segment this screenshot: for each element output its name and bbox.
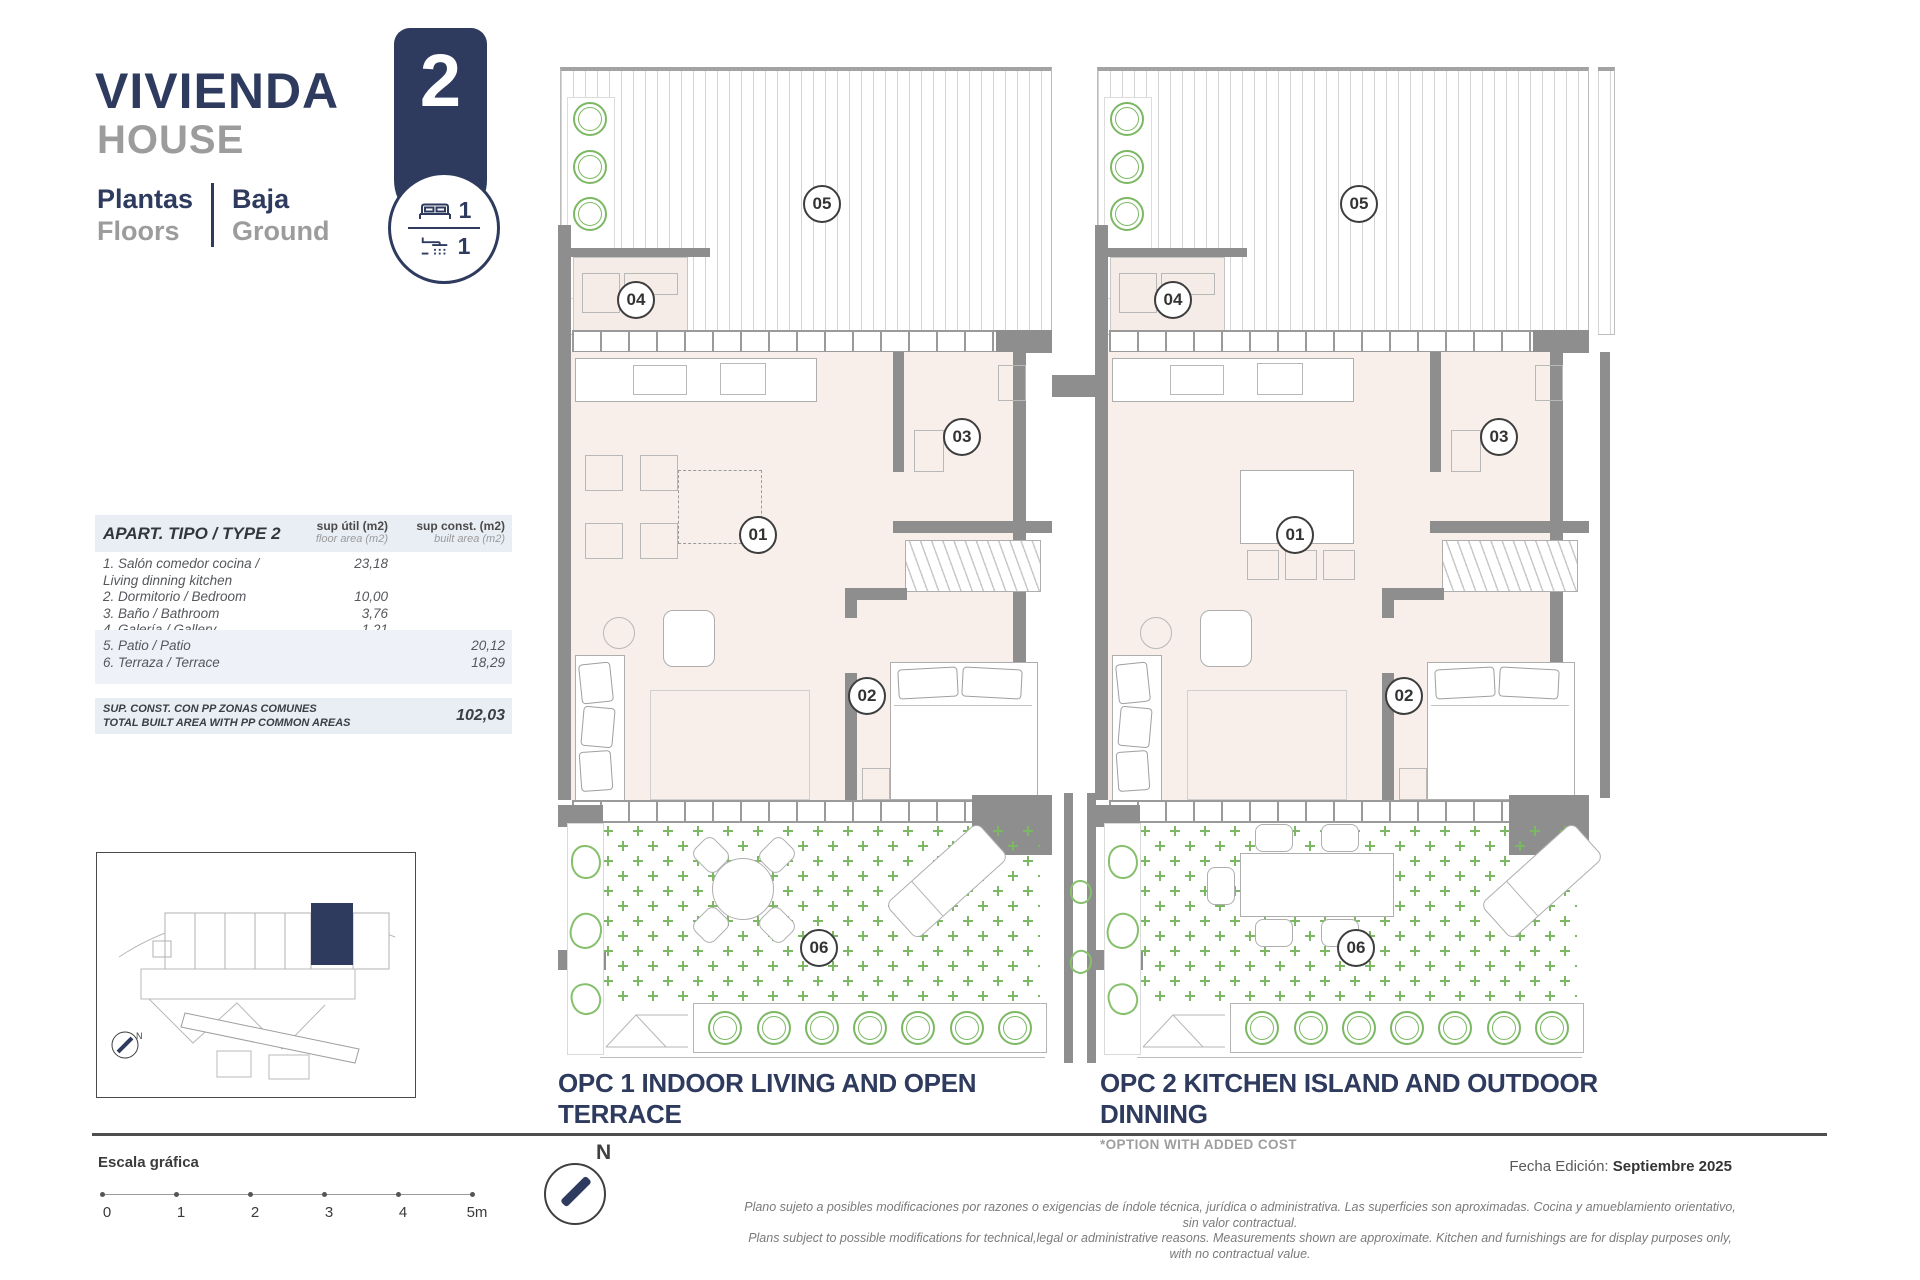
- window-band: [572, 330, 996, 353]
- location-keymap: N: [96, 852, 416, 1098]
- floor-value-es: Baja: [232, 183, 329, 215]
- plant-icon: [1110, 197, 1144, 231]
- planter-row: [693, 1003, 1047, 1053]
- pillow: [1434, 666, 1495, 699]
- wall: [1430, 521, 1589, 533]
- toilet: [1535, 365, 1563, 401]
- window-band: [1109, 800, 1509, 823]
- stool: [1323, 550, 1355, 580]
- room-label-bath: 03: [1480, 418, 1518, 456]
- plant-icon: [1110, 150, 1144, 184]
- armchair: [1200, 610, 1252, 667]
- table-row: 6. Terraza / Terrace 18,29: [95, 655, 512, 672]
- total-label-es: SUP. CONST. CON PP ZONAS COMUNES: [103, 702, 385, 716]
- edition-date-value: Septiembre 2025: [1613, 1158, 1732, 1175]
- caption-opc2-note: *OPTION WITH ADDED COST: [1100, 1137, 1680, 1152]
- chair: [640, 455, 678, 491]
- outdoor-dining-table: [1240, 853, 1394, 917]
- rug: [1187, 690, 1347, 800]
- page-title-en: HOUSE: [97, 120, 244, 160]
- floorplan-opc1: 05 04 03 01: [558, 45, 1064, 1067]
- wall: [996, 330, 1052, 353]
- chair: [1255, 919, 1293, 947]
- cushion: [578, 661, 614, 704]
- total-label-en: TOTAL BUILT AREA WITH PP COMMON AREAS: [103, 716, 385, 730]
- col-floor-area: sup útil (m2) floor area (m2): [316, 519, 388, 545]
- plant-icon: [998, 1011, 1032, 1045]
- plan-sheet: VIVIENDA HOUSE Plantas Floors Baja Groun…: [0, 0, 1920, 1280]
- table-title: APART. TIPO / TYPE 2: [103, 524, 281, 544]
- cushion: [580, 706, 615, 749]
- table-total-band: SUP. CONST. CON PP ZONAS COMUNES TOTAL B…: [95, 698, 512, 734]
- total-value: 102,03: [385, 707, 505, 725]
- wall: [1095, 248, 1247, 257]
- neighbor-patio-fragment: [1598, 67, 1615, 335]
- plant-icon: [571, 845, 601, 879]
- table-rows-1-4: 1. Salón comedor cocina / Living dinning…: [95, 556, 512, 639]
- page-title: VIVIENDA: [95, 66, 339, 116]
- armchair: [663, 610, 715, 667]
- scale-label: Escala gráfica: [98, 1154, 199, 1171]
- window-band: [1109, 330, 1533, 353]
- stool: [1285, 550, 1317, 580]
- wall: [893, 352, 904, 472]
- disclaimer: Plano sujeto a posibles modificaciones p…: [740, 1200, 1740, 1262]
- room-label-patio: 05: [1340, 185, 1378, 223]
- plant-icon: [573, 197, 607, 231]
- side-table: [603, 617, 635, 649]
- type-number: 2: [394, 44, 487, 118]
- room-label-bath: 03: [943, 418, 981, 456]
- cushion: [1116, 750, 1151, 792]
- nightstand: [1399, 768, 1427, 800]
- plant-icon: [1294, 1011, 1328, 1045]
- caption-opc2-block: OPC 2 KITCHEN ISLAND AND OUTDOOR DINNING…: [1100, 1068, 1680, 1152]
- compass-needle: [560, 1176, 592, 1208]
- pillow: [1498, 666, 1559, 699]
- plant-icon: [1110, 102, 1144, 136]
- appliance: [582, 273, 620, 313]
- party-wall: [1064, 793, 1073, 1063]
- compass-icon: [544, 1163, 606, 1225]
- floors-label-es: Plantas: [97, 183, 193, 215]
- wall: [558, 225, 571, 352]
- plant-icon: [708, 1011, 742, 1045]
- room-label-gallery: 04: [1154, 281, 1192, 319]
- planter-row: [1230, 1003, 1584, 1053]
- table-row: 5. Patio / Patio 20,12: [95, 638, 512, 655]
- baseline: [600, 1057, 1045, 1058]
- plant-icon: [901, 1011, 935, 1045]
- disclaimer-en: Plans subject to possible modifications …: [740, 1231, 1740, 1262]
- wall: [845, 588, 907, 600]
- amenities-circle: 1 1: [388, 172, 500, 284]
- cushion: [1117, 706, 1152, 749]
- washbasin: [1451, 430, 1481, 472]
- wall: [1382, 588, 1444, 600]
- room-label-bedroom: 02: [1385, 677, 1423, 715]
- shower-icon: [418, 234, 452, 258]
- wardrobe: [1442, 540, 1578, 592]
- floor-info: Plantas Floors Baja Ground: [97, 183, 330, 248]
- scale-bar: 0 1 2 3 4 5m: [102, 1188, 472, 1224]
- side-table: [1140, 617, 1172, 649]
- caption-opc1: OPC 1 INDOOR LIVING AND OPEN TERRACE: [558, 1068, 1078, 1130]
- footer-divider: [92, 1133, 1827, 1136]
- stove: [1257, 363, 1303, 395]
- kitchen-counter: [1112, 358, 1354, 402]
- floorplan-opc2: 05 04 03 01 02: [1095, 45, 1601, 1067]
- appliance: [1119, 273, 1157, 313]
- wall: [1382, 600, 1394, 618]
- rug: [650, 690, 810, 800]
- table-rows-5-6: 5. Patio / Patio 20,12 6. Terraza / Terr…: [95, 630, 512, 684]
- plant-icon: [1070, 880, 1092, 904]
- chair: [640, 523, 678, 559]
- sink: [633, 365, 687, 395]
- plant-icon: [950, 1011, 984, 1045]
- plant-icon: [573, 150, 607, 184]
- room-label-living: 01: [1276, 516, 1314, 554]
- table-row: 2. Dormitorio / Bedroom 10,00: [95, 589, 512, 606]
- plant-icon: [1342, 1011, 1376, 1045]
- chair: [1207, 867, 1235, 905]
- plant-icon: [1390, 1011, 1424, 1045]
- table-row: 3. Baño / Bathroom 3,76: [95, 606, 512, 623]
- wall: [1052, 375, 1096, 397]
- room-label-terrace: 06: [1337, 929, 1375, 967]
- plant-icon: [757, 1011, 791, 1045]
- bed-icon: [417, 198, 453, 222]
- ramp-marks: [604, 1007, 689, 1049]
- table-row: 1. Salón comedor cocina / Living dinning…: [95, 556, 512, 589]
- pillow: [961, 666, 1022, 699]
- keymap-drawing: N: [97, 853, 415, 1097]
- nightstand: [862, 768, 890, 800]
- keymap-north-label: N: [136, 1031, 143, 1041]
- plant-icon: [1108, 845, 1138, 879]
- plant-icon: [853, 1011, 887, 1045]
- cushion: [1115, 661, 1151, 704]
- north-label: N: [596, 1141, 611, 1165]
- floor-value-en: Ground: [232, 215, 329, 247]
- disclaimer-es: Plano sujeto a posibles modificaciones p…: [740, 1200, 1740, 1231]
- chair: [585, 523, 623, 559]
- washbasin: [914, 430, 944, 472]
- plant-icon: [1487, 1011, 1521, 1045]
- plant-icon: [805, 1011, 839, 1045]
- room-label-patio: 05: [803, 185, 841, 223]
- neighbor-wall: [1600, 352, 1610, 798]
- room-label-terrace: 06: [800, 929, 838, 967]
- window-band: [572, 800, 972, 823]
- kitchen-counter: [575, 358, 817, 402]
- wall: [1533, 330, 1589, 353]
- wall: [1095, 225, 1108, 352]
- baseline: [1137, 1057, 1582, 1058]
- bathroom-count: 1: [458, 233, 471, 260]
- stove: [720, 363, 766, 395]
- wardrobe: [905, 540, 1041, 592]
- stool: [1247, 550, 1279, 580]
- plant-icon: [573, 102, 607, 136]
- col-built-area: sup const. (m2) built area (m2): [416, 519, 505, 545]
- room-label-bedroom: 02: [848, 677, 886, 715]
- caption-opc2: OPC 2 KITCHEN ISLAND AND OUTDOOR DINNING: [1100, 1068, 1680, 1130]
- plant-icon: [1438, 1011, 1472, 1045]
- divider: [211, 183, 214, 247]
- pillow: [897, 666, 958, 699]
- wall: [1430, 352, 1441, 472]
- bed-sheet-line: [894, 705, 1032, 706]
- room-label-gallery: 04: [617, 281, 655, 319]
- wall: [558, 248, 710, 257]
- chair: [585, 455, 623, 491]
- ramp-marks: [1141, 1007, 1226, 1049]
- bedroom-count: 1: [459, 197, 472, 224]
- cushion: [579, 750, 614, 792]
- bed-sheet-line: [1431, 705, 1569, 706]
- chair: [1321, 824, 1359, 852]
- chair: [1255, 824, 1293, 852]
- wall: [893, 521, 1052, 533]
- table-header-band: APART. TIPO / TYPE 2 sup útil (m2) floor…: [95, 515, 512, 552]
- toilet: [998, 365, 1026, 401]
- plant-icon: [1245, 1011, 1279, 1045]
- room-label-living: 01: [739, 516, 777, 554]
- wall: [845, 600, 857, 618]
- highlighted-unit: [311, 903, 353, 965]
- floors-label-en: Floors: [97, 215, 193, 247]
- plant-icon: [1535, 1011, 1569, 1045]
- edition-date: Fecha Edición: Septiembre 2025: [1380, 1158, 1732, 1175]
- sink: [1170, 365, 1224, 395]
